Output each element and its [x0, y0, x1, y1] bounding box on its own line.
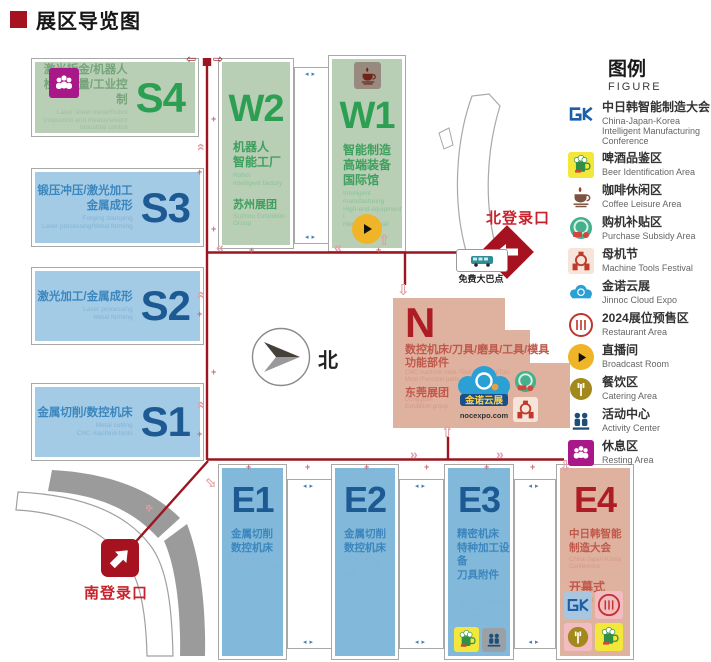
hall-s3-code: S3	[141, 187, 190, 229]
festival-icon	[568, 248, 594, 274]
curved-road-band	[16, 492, 173, 656]
hall-s3-name-en: Forging stamping Laser processing/Metal …	[37, 215, 132, 231]
chevrons: «	[195, 143, 209, 151]
hall-e2-code: E2	[335, 482, 395, 518]
door-arrows: ◂▸	[515, 482, 555, 490]
hall-e4-code: E4	[560, 482, 630, 518]
down-right-arrow-icon: ⇩	[202, 474, 220, 492]
svg-text:金诺云展: 金诺云展	[464, 395, 504, 407]
presale-stamp-icon	[595, 591, 623, 619]
chevrons: «	[142, 499, 157, 514]
hall-w2: W2 机器人 智能工厂 Robot Intelligent factory 苏州…	[222, 62, 290, 245]
hall-e3-code: E3	[448, 482, 510, 518]
corridor-e2-e3: ◂▸ ◂▸	[399, 479, 444, 649]
beer-icon	[454, 627, 479, 652]
hall-e1: E1 金属切削 数控机床 Metal cutting CNC machine t…	[222, 468, 283, 656]
corridor-e1-e2: ◂▸ ◂▸	[287, 479, 332, 649]
up-arrow-icon: ⇧	[441, 425, 454, 440]
legend-item: 中日韩智能制造大会China-Japan-Korea Intelligent M…	[568, 101, 711, 146]
gk-logo-icon	[568, 101, 594, 127]
title-bullet-square	[10, 11, 27, 28]
hall-w1-code: W1	[332, 97, 402, 135]
beer-icon	[568, 152, 594, 178]
corridor-e3-e4: ◂▸ ◂▸	[514, 479, 556, 649]
hall-e3-name-zh: 精密机床 特种加工设备 刀具附件	[457, 528, 510, 583]
hall-e3: E3 精密机床 特种加工设备 刀具附件 Precision machine to…	[448, 468, 510, 656]
legend-item: 金诺云展Jinnoc Cloud Expo	[568, 280, 711, 306]
south-entrance-label: 南登录口	[84, 582, 148, 603]
bus-icon	[470, 255, 494, 267]
route-start-node	[203, 58, 211, 66]
hall-n: N 数控机床/刀具/磨具/工具/模具 功能部件 CNC machine tool…	[393, 298, 570, 428]
hall-e4-name-en: China-Japan-Korea Conference	[569, 557, 630, 571]
chevrons: «	[334, 240, 342, 254]
free-bus-stop	[456, 249, 508, 272]
hall-s2-name-zh: 激光加工/金属成形	[37, 290, 132, 305]
hall-s4-code: S4	[136, 77, 185, 119]
hall-e1-name-en: Metal cutting CNC machine tools	[231, 557, 283, 571]
subsidy-icon	[568, 216, 594, 242]
page-title: 展区导览图	[36, 5, 141, 34]
hall-w2-group-zh: 苏州展团	[233, 196, 290, 212]
hall-e3-name-en: Precision machine tools Special processi…	[457, 585, 510, 628]
subsidy-icon	[513, 370, 538, 395]
door-arrows: ◂▸	[288, 482, 331, 490]
activity-icon	[568, 408, 594, 434]
page-header: 展区导览图	[10, 5, 141, 34]
left-arrow-icon: ⇦	[186, 53, 196, 65]
right-arrow-icon: ⇨	[213, 53, 223, 65]
hall-w1: W1 智能制造 高端装备 国际馆 Intelligent manufacturi…	[332, 59, 402, 248]
north-entrance-label: 北登录口	[486, 207, 550, 228]
cloud-logo-site: nocexpo.com	[451, 411, 517, 420]
legend-item: 咖啡休闲区Coffee Leisure Area	[568, 184, 711, 210]
legend-panel: 图例 FIGURE 中日韩智能制造大会China-Japan-Korea Int…	[568, 54, 711, 472]
hall-s1: 金属切削/数控机床 Metal cutting CNC machine tool…	[35, 387, 200, 457]
gk-logo-icon	[564, 591, 592, 619]
legend-item: 购机补贴区Purchase Subsidy Area	[568, 216, 711, 242]
hall-n-group-en: Dongguan Exhibition group	[405, 397, 448, 411]
hall-w2-code: W2	[222, 90, 290, 128]
hall-e2: E2 金属切削 数控机床 Metal cutting CNC machine t…	[335, 468, 395, 656]
corridor-w2-w1: ◂▸ ◂▸	[294, 67, 329, 244]
hall-e4-name-zh: 中日韩智能 制造大会	[569, 528, 630, 555]
jinnoc-cloud-logo: 金诺云展 nocexpo.com	[451, 364, 517, 420]
cloud-icon	[568, 280, 594, 306]
hall-w2-group-en: Suzhou Exhibition Group	[233, 213, 290, 227]
legend-item: 啤酒品鉴区Beer Identification Area	[568, 152, 711, 178]
hall-e4: E4 中日韩智能 制造大会 China-Japan-Korea Conferen…	[560, 468, 630, 656]
coffee-icon	[568, 184, 594, 210]
machine-festival-icon	[513, 397, 538, 422]
hall-e1-code: E1	[222, 482, 283, 518]
door-arrows: ◂▸	[295, 70, 328, 78]
hall-s3: 锻压冲压/激光加工 金属成形 Forging stamping Laser pr…	[35, 172, 200, 243]
chevrons: »	[496, 447, 504, 461]
resting-icon	[568, 440, 594, 466]
catering-icon	[568, 376, 594, 402]
door-arrows: ◂▸	[288, 638, 331, 646]
gray-swoosh-right	[164, 524, 205, 656]
door-arrows: ◂▸	[400, 482, 443, 490]
presale-icon	[568, 312, 594, 338]
hall-e1-name-zh: 金属切削 数控机床	[231, 528, 283, 555]
hall-s2-name-en: Laser processing Metal forming	[37, 306, 132, 322]
chevrons: «	[195, 401, 209, 409]
hall-s3-name-zh: 锻压冲压/激光加工 金属成形	[37, 184, 132, 214]
chevrons: «	[195, 291, 209, 299]
legend-item: 直播间Broadcast Room	[568, 344, 711, 370]
thick-up-right-arrow-icon	[107, 545, 134, 572]
hall-s4: 激光钣金/机器人 检测测量/工业控制 Laser sheet metal/Rob…	[35, 62, 195, 133]
legend-subtitle: FIGURE	[568, 81, 711, 93]
door-arrows: ◂▸	[400, 638, 443, 646]
coffee-icon	[354, 62, 381, 89]
door-arrows: ◂▸	[515, 638, 555, 646]
hall-s1-code: S1	[141, 401, 190, 443]
beer-icon	[595, 623, 623, 651]
activity-center-icon	[482, 628, 506, 652]
broadcast-icon	[568, 344, 594, 370]
chevrons: »	[410, 447, 418, 461]
exhibition-floor-map: 展区导览图 激光钣金/机器人 检测测量/工业控制 Laser sheet met…	[0, 0, 711, 662]
catering-icon	[564, 623, 592, 651]
legend-title: 图例	[568, 54, 711, 81]
legend-item: 2024展位预售区Restaurant Area	[568, 312, 711, 338]
hall-s1-name-en: Metal cutting CNC machine tools	[37, 422, 132, 438]
hall-e2-name-zh: 金属切削 数控机床	[344, 528, 395, 555]
hall-s1-name-zh: 金属切削/数控机床	[37, 406, 132, 421]
hall-w2-name-zh: 机器人 智能工厂	[233, 140, 290, 170]
chevrons: «	[216, 240, 224, 254]
hall-s4-name-en: Laser sheet metal/Robot Inspection and m…	[35, 109, 128, 132]
free-bus-label: 免费大巴点	[446, 272, 516, 285]
hall-s2-code: S2	[141, 285, 190, 327]
hall-w1-name-zh: 智能制造 高端装备 国际馆	[343, 143, 402, 188]
gray-swoosh-top	[48, 470, 180, 538]
resting-people-icon	[49, 68, 79, 98]
hall-e2-name-en: Metal cutting CNC machine tools	[344, 557, 395, 579]
legend-item: 活动中心Activity Center	[568, 408, 711, 434]
compass-north-label: 北	[318, 344, 338, 373]
hall-w2-name-en: Robot Intelligent factory	[233, 172, 290, 188]
legend-item: 餐饮区Catering Area	[568, 376, 711, 402]
compass	[250, 326, 312, 393]
door-arrows: ◂▸	[295, 233, 328, 241]
legend-item: 休息区Resting Area	[568, 440, 711, 466]
down-arrow-icon: ⇩	[397, 283, 410, 298]
hall-s2: 激光加工/金属成形 Laser processing Metal forming…	[35, 271, 200, 341]
legend-item: 母机节Machine Tools Festival	[568, 248, 711, 274]
hall-n-code: N	[405, 302, 434, 344]
south-entrance-marker	[101, 539, 139, 577]
